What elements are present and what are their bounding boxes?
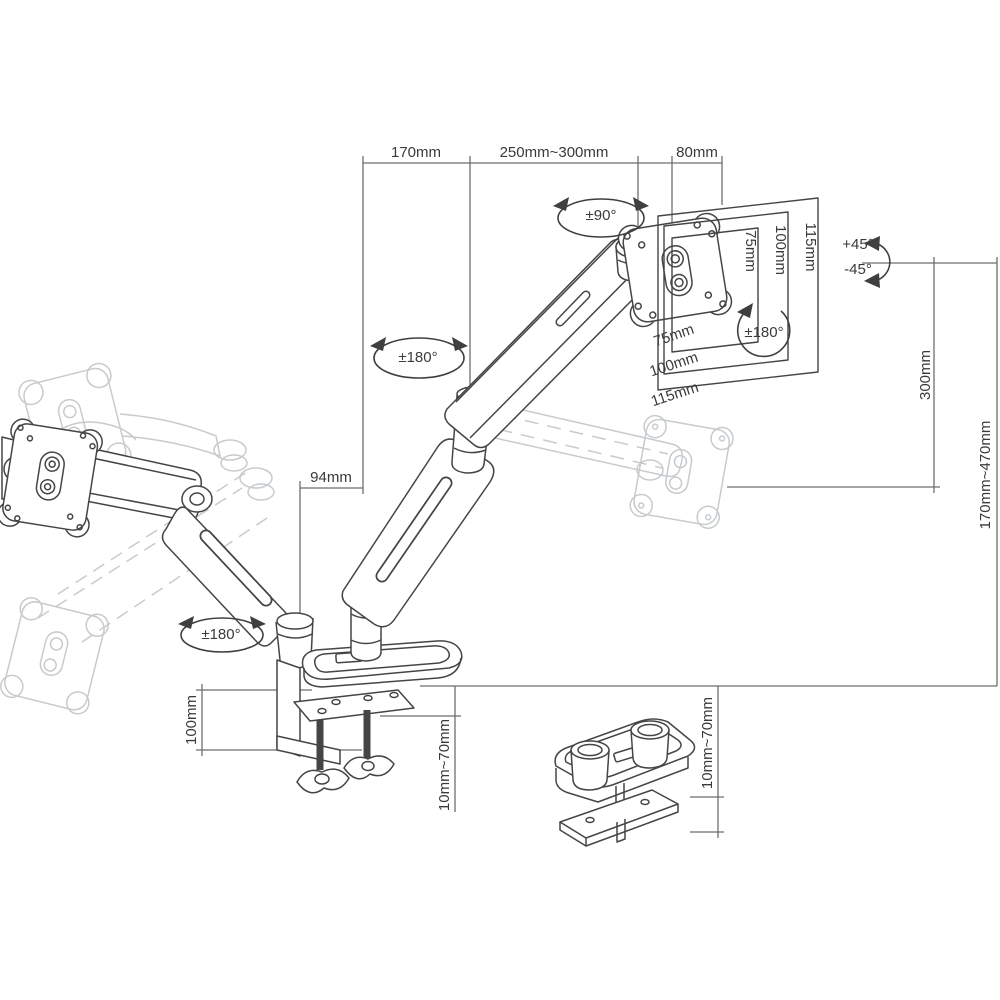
ghost-plate-lower-left bbox=[0, 595, 111, 716]
vesa-right-75-label: 75mm bbox=[742, 221, 758, 281]
tilt-up-label: +45° bbox=[828, 237, 888, 253]
clamp-base bbox=[277, 641, 462, 793]
elbow-swivel-label: ±180° bbox=[378, 350, 458, 366]
dim-label-head-offset: 80mm bbox=[657, 145, 737, 161]
dim-label-front-extension: 250mm~300mm bbox=[474, 145, 634, 161]
vesa-plate-right bbox=[617, 212, 734, 329]
vesa-right-100-label: 100mm bbox=[772, 220, 788, 280]
dim-label-rear-extension: 170mm bbox=[356, 145, 476, 161]
clamp-thickness-label: 10mm~70mm bbox=[437, 705, 453, 825]
grommet-mount bbox=[555, 719, 694, 846]
lift-range-label: 300mm bbox=[918, 345, 934, 405]
vesa-right-115-label: 115mm bbox=[802, 217, 818, 277]
left-arm bbox=[0, 417, 313, 668]
solid-art bbox=[0, 198, 818, 846]
head-swivel-label: ±90° bbox=[561, 208, 641, 224]
base-swivel-label: ±180° bbox=[181, 627, 261, 643]
pole-offset-label: 94mm bbox=[291, 470, 371, 486]
vesa-rotation-label: ±180° bbox=[724, 325, 804, 341]
tilt-down-label: -45° bbox=[828, 262, 888, 278]
clamp-height-label: 100mm bbox=[184, 690, 200, 750]
grommet-thickness-label: 10mm~70mm bbox=[700, 683, 716, 803]
diagram-canvas: 170mm 250mm~300mm 80mm ±90° 75mm 100mm 1… bbox=[0, 0, 1000, 1000]
height-range-label: 170mm~470mm bbox=[978, 405, 994, 545]
vesa-plate-left bbox=[0, 417, 104, 538]
